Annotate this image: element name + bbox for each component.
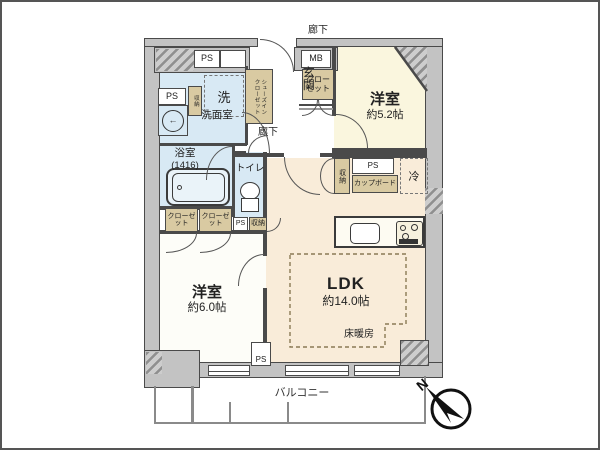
cupboard: カップボード xyxy=(352,175,398,193)
balcony-divider-2 xyxy=(287,402,289,423)
washbasin-box: ← xyxy=(158,105,188,136)
closet-1: クローゼット xyxy=(165,208,198,232)
fridge-space: 冷 xyxy=(400,158,428,194)
hatch-bottom-left xyxy=(146,352,162,374)
closet-1-label: クローゼット xyxy=(167,213,196,228)
window-bedroom2 xyxy=(208,365,250,376)
ps-box-top: PS xyxy=(194,50,220,68)
bedroom1-name: 洋室 xyxy=(370,91,400,109)
ldk-name: LDK xyxy=(327,274,365,294)
ldk-size: 約14.0帖 xyxy=(322,294,369,308)
stove-burner-1 xyxy=(400,225,406,231)
bedroom2-size: 約6.0帖 xyxy=(188,302,227,316)
balcony-wall-bottom xyxy=(154,422,426,424)
outer-corridor-label: 廊下 xyxy=(296,24,340,37)
floor-heating-label: 床暖房 xyxy=(332,328,386,342)
toilet-label: トイレ xyxy=(235,163,265,175)
stove-burner-2 xyxy=(411,224,418,231)
balcony-divider-1 xyxy=(229,402,231,423)
bathtub-drain xyxy=(177,185,182,190)
bedroom2-name: 洋室 xyxy=(192,284,222,302)
kitchen-sink xyxy=(350,223,380,244)
balcony-wall-left xyxy=(154,386,156,424)
toilet-tank xyxy=(241,198,259,212)
shoes-closet-label-1: シューズイン xyxy=(260,79,266,115)
ps-box-mid: PS xyxy=(233,217,248,231)
kitchen-storage: 収納 xyxy=(334,158,350,194)
bedroom1-label: 洋室 約5.2帖 xyxy=(345,88,425,126)
ldk-label: LDK 約14.0帖 xyxy=(305,270,387,312)
wall-top-left xyxy=(144,38,258,47)
wall-bedroom1-bottom xyxy=(332,148,427,158)
stove-grill xyxy=(399,239,418,244)
wall-box-empty xyxy=(220,50,246,68)
ps-label: PS xyxy=(368,162,379,170)
balcony-wall-right xyxy=(424,376,426,424)
bedroom1-size: 約5.2帖 xyxy=(366,109,403,122)
stove xyxy=(396,221,423,246)
storage-label: 収納 xyxy=(251,220,265,227)
ps-label: PS xyxy=(166,92,178,101)
balcony-post xyxy=(191,386,194,423)
hatch-top-left xyxy=(156,49,194,71)
hallway-label: 廊下 xyxy=(248,126,288,139)
kitchen-counter xyxy=(334,216,425,248)
window-ldk-2 xyxy=(354,365,400,376)
fridge-label: 冷 xyxy=(409,168,420,184)
kitchen-storage-label: 収納 xyxy=(338,169,345,184)
window-ldk-1 xyxy=(285,365,349,376)
shoes-closet-label-2: クローゼット xyxy=(253,79,259,115)
closet-2-label: クローゼット xyxy=(201,213,230,228)
linen-storage-label: 収納 xyxy=(192,95,198,107)
washroom-label: 洗面室 xyxy=(188,108,246,122)
ps-label: PS xyxy=(236,220,245,227)
ps-box-bottom: PS xyxy=(251,342,271,366)
ps-box-left: PS xyxy=(158,88,186,105)
floor-plan: PS MB クローゼット シューズイン 収納 洗 PS ← クローゼット クロー… xyxy=(0,0,600,450)
ps-label: PS xyxy=(201,54,213,63)
balcony-label: バルコニー xyxy=(260,386,344,401)
wall-top-right xyxy=(296,38,443,47)
ps-box-kitchen: PS xyxy=(352,158,394,174)
compass-circle xyxy=(432,390,470,428)
bathroom-size-label: (1416) xyxy=(160,159,210,172)
washbasin-icon: ← xyxy=(162,110,184,132)
compass-needle xyxy=(426,387,464,423)
storage-box-mid: 収納 xyxy=(249,217,267,231)
hatch-bottom-right xyxy=(400,340,429,366)
closet-2: クローゼット xyxy=(199,208,232,232)
cupboard-label: カップボード xyxy=(354,180,396,187)
ps-label: PS xyxy=(256,356,267,364)
bedroom2-label: 洋室 約6.0帖 xyxy=(165,280,249,320)
compass: N xyxy=(413,375,470,428)
entrance-label: 玄関 xyxy=(299,54,317,102)
washer-label: 洗 xyxy=(217,87,230,106)
